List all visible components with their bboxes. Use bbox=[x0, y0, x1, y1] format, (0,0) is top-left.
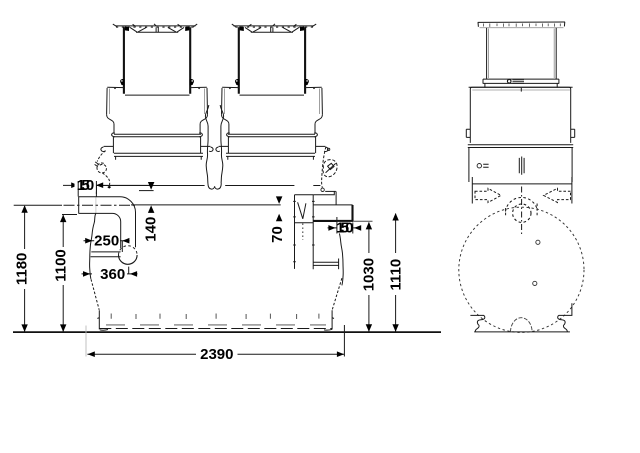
svg-text:140: 140 bbox=[143, 217, 160, 242]
svg-text:1100: 1100 bbox=[53, 249, 70, 282]
svg-text:150: 150 bbox=[336, 219, 354, 236]
svg-text:1110: 1110 bbox=[387, 259, 404, 291]
svg-text:1030: 1030 bbox=[361, 258, 378, 291]
svg-text:360: 360 bbox=[100, 266, 125, 283]
svg-text:1180: 1180 bbox=[13, 253, 30, 286]
svg-text:150: 150 bbox=[77, 177, 95, 194]
svg-text:250: 250 bbox=[94, 233, 119, 250]
svg-text:70: 70 bbox=[269, 226, 286, 243]
svg-text:2390: 2390 bbox=[200, 346, 233, 363]
